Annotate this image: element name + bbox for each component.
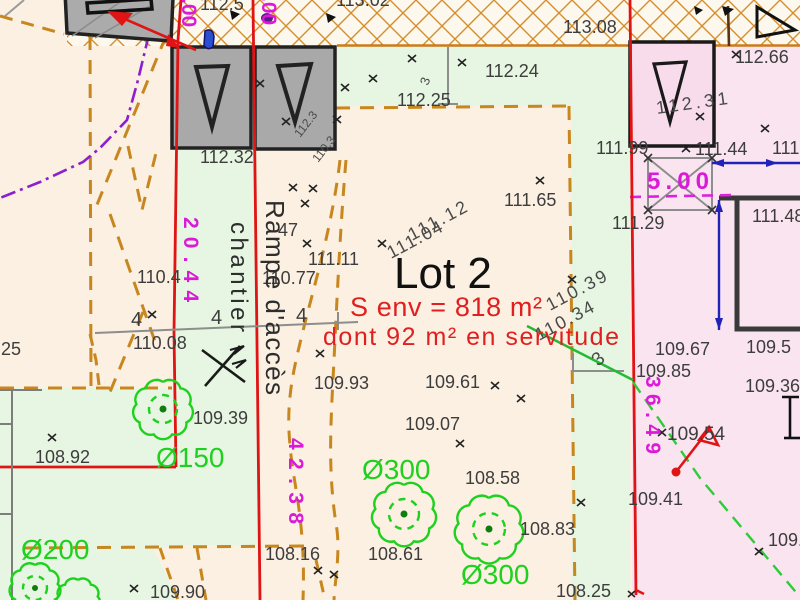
svg-text:110.4: 110.4 [137,267,181,287]
svg-text:110.08: 110.08 [133,333,187,353]
svg-text:109.67: 109.67 [655,339,710,359]
svg-text:108.58: 108.58 [465,468,520,488]
svg-text:109.2: 109.2 [768,530,800,550]
svg-text:111.44: 111.44 [695,139,747,159]
svg-text:Rampe d'accès: Rampe d'accès [260,200,290,395]
svg-text:111.48: 111.48 [752,206,800,226]
svg-text:4: 4 [131,309,142,331]
svg-text:chantier: chantier [225,222,252,332]
svg-text:Ø200: Ø200 [21,534,90,565]
svg-text:.00: .00 [257,0,280,25]
svg-text:109.93: 109.93 [314,373,369,393]
svg-text:109.41: 109.41 [628,489,683,509]
svg-text:111.2: 111.2 [772,138,800,158]
svg-text:111.11: 111.11 [308,249,359,269]
svg-text:112.5: 112.5 [200,0,244,14]
svg-text:4: 4 [296,305,307,327]
svg-text:109.61: 109.61 [425,372,480,392]
svg-text:113.02: 113.02 [336,0,390,10]
svg-text:108.83: 108.83 [520,519,575,539]
svg-text:112.25: 112.25 [397,90,451,110]
svg-text:dont 92 m² en servitude: dont 92 m² en servitude [323,323,619,351]
svg-text:108.61: 108.61 [368,544,423,564]
svg-text:S env = 818 m²: S env = 818 m² [350,292,542,322]
svg-text:111.29: 111.29 [612,213,664,233]
svg-text:111.99: 111.99 [596,138,648,158]
svg-text:109.39: 109.39 [193,408,248,428]
svg-text:5.00: 5.00 [647,168,709,195]
svg-text:112.32: 112.32 [200,147,254,167]
svg-text:Ø300: Ø300 [362,454,431,485]
svg-text:.00: .00 [177,0,200,27]
svg-text:4: 4 [211,307,222,329]
svg-text:109.54: 109.54 [667,424,726,445]
svg-text:108.92: 108.92 [35,447,90,467]
svg-text:109.90: 109.90 [150,582,205,600]
svg-text:112.66: 112.66 [735,47,789,67]
svg-text:111.65: 111.65 [504,190,556,210]
svg-text:109.36: 109.36 [745,376,800,396]
svg-text:108.25: 108.25 [556,581,611,600]
svg-text:109.5: 109.5 [746,337,791,357]
svg-text:Ø150: Ø150 [156,442,225,473]
svg-text:108.16: 108.16 [265,544,320,564]
svg-text:112.24: 112.24 [485,61,539,81]
svg-text:Ø300: Ø300 [461,559,530,590]
svg-text:109.07: 109.07 [405,414,460,434]
svg-text:1.25: 1.25 [0,339,21,359]
svg-text:113.08: 113.08 [563,17,617,37]
svg-text:Lot 2: Lot 2 [394,249,492,298]
